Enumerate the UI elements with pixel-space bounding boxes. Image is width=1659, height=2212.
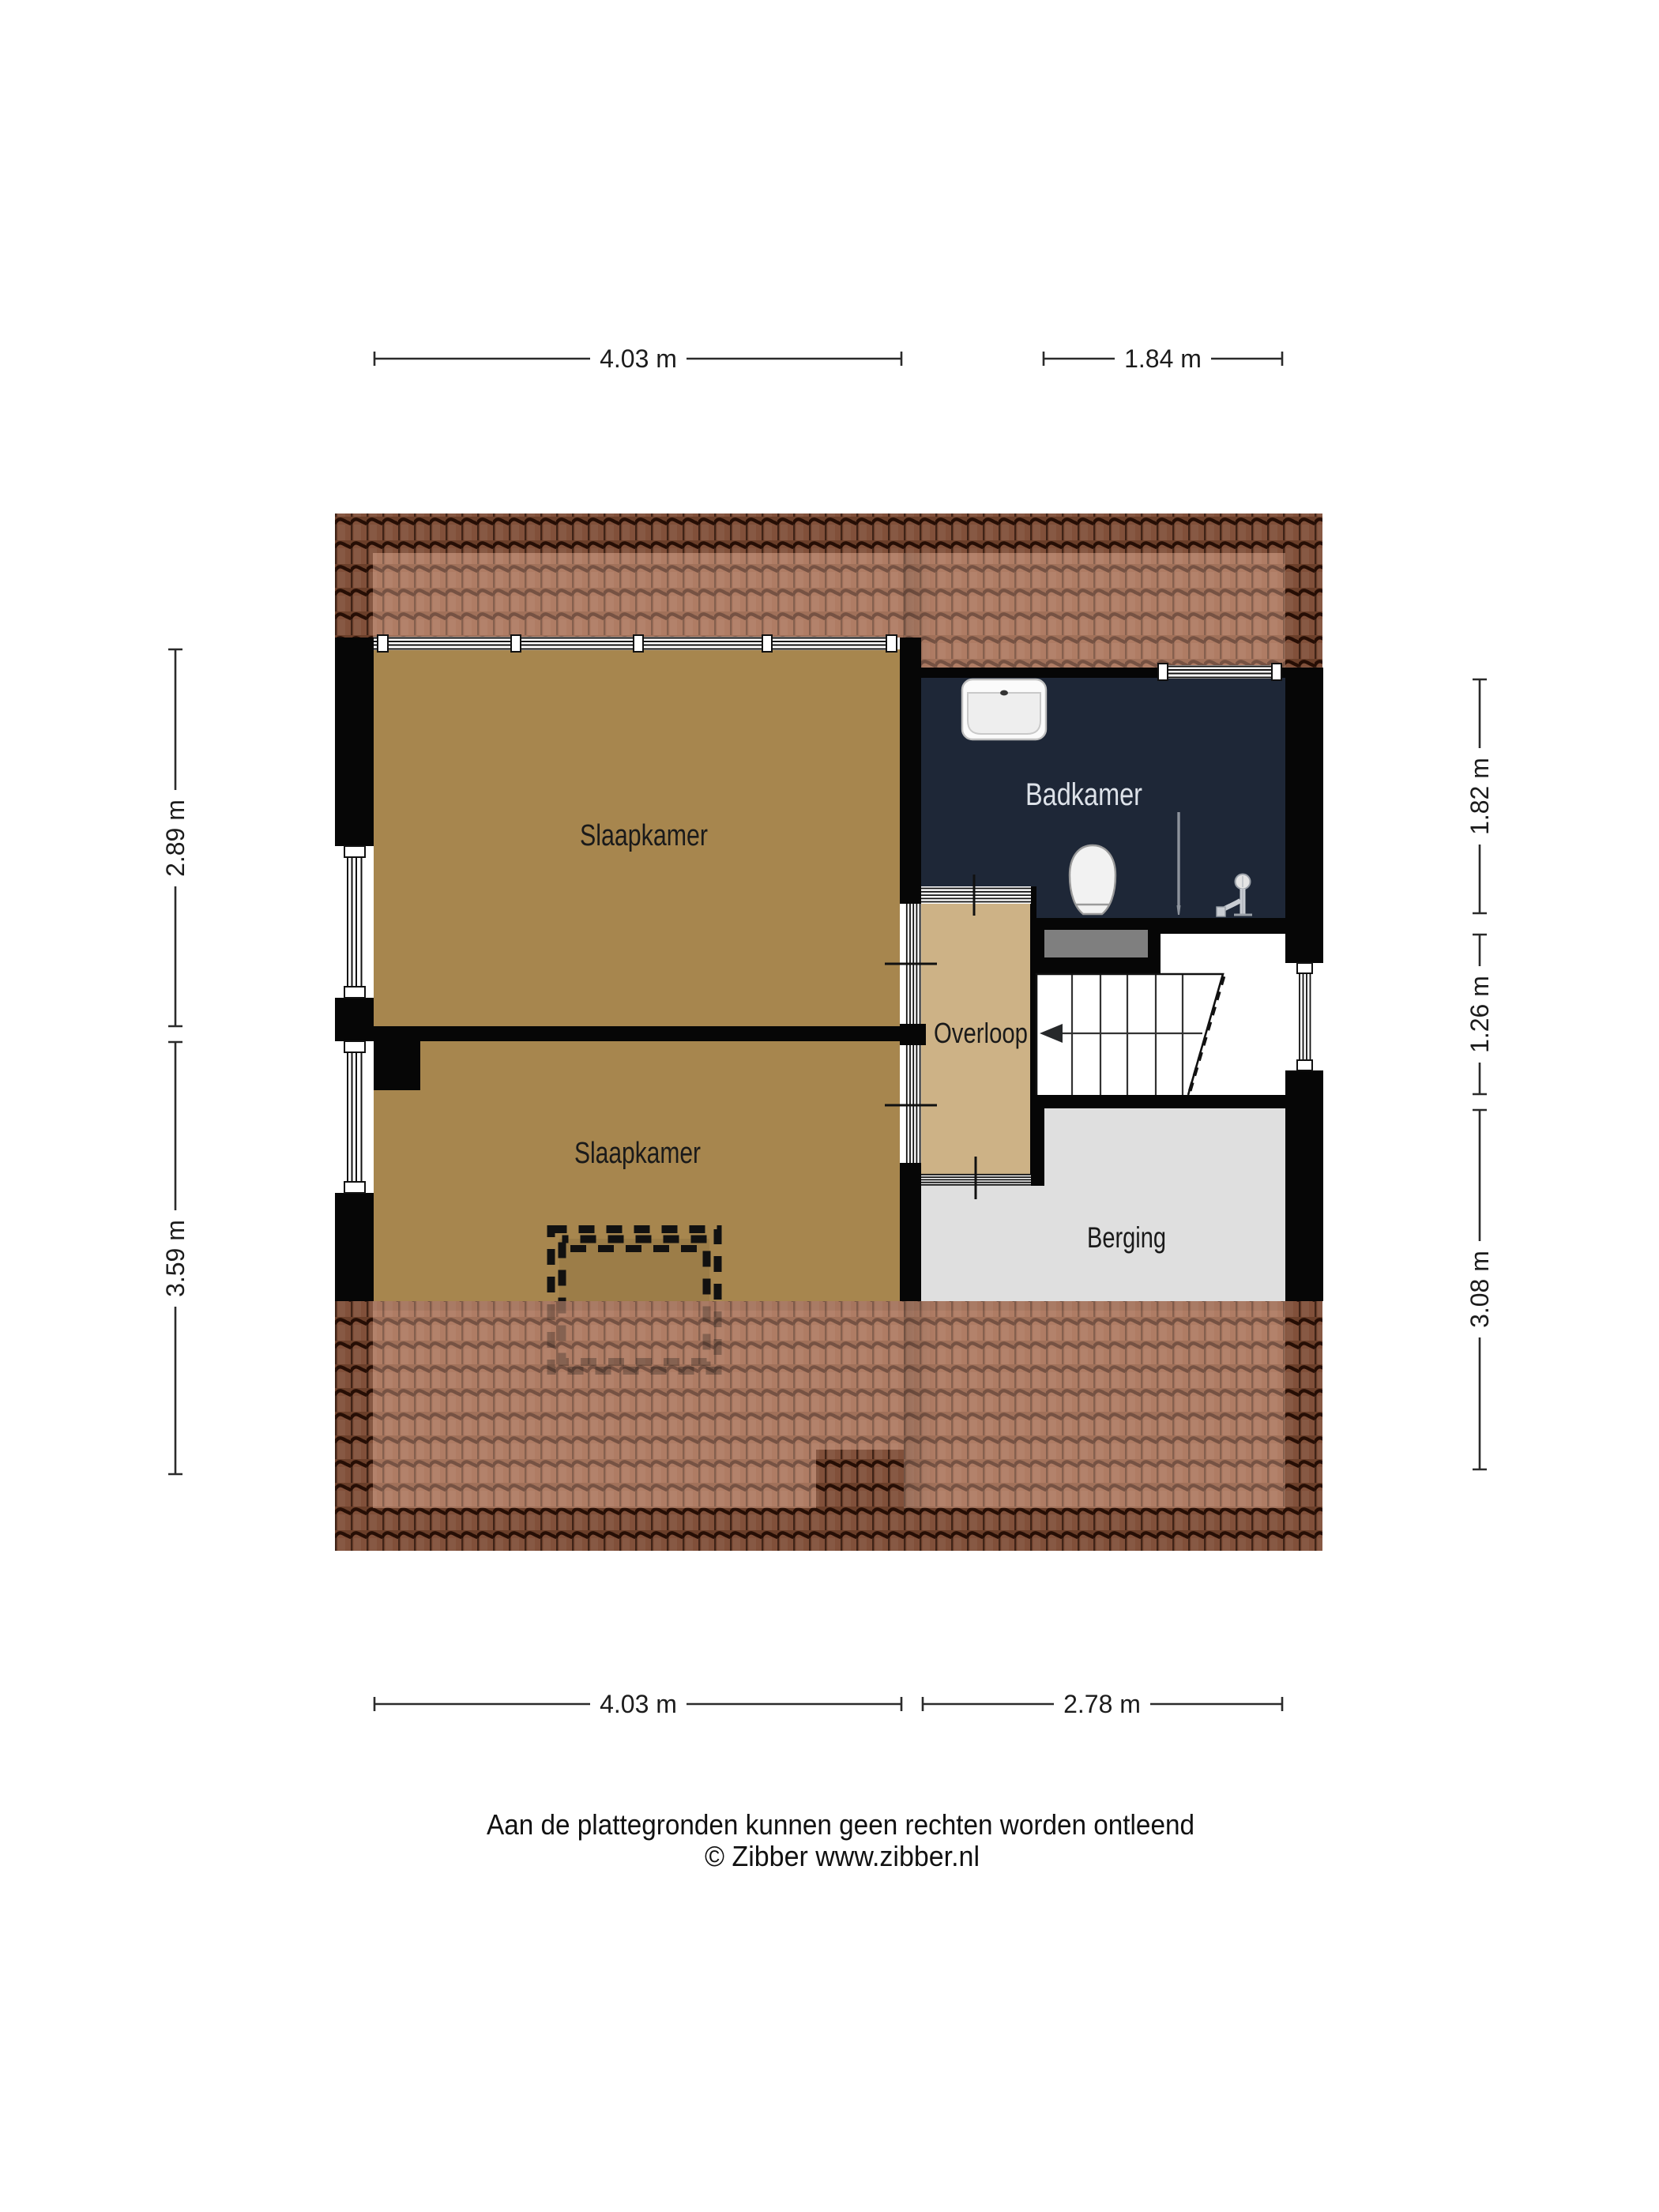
svg-text:Slaapkamer: Slaapkamer <box>580 819 708 852</box>
svg-text:Berging: Berging <box>1087 1221 1166 1254</box>
svg-text:3.08 m: 3.08 m <box>1465 1251 1494 1328</box>
svg-text:3.59 m: 3.59 m <box>161 1220 190 1297</box>
svg-text:4.03 m: 4.03 m <box>600 1690 677 1718</box>
svg-text:Aan de plattegronden kunnen ge: Aan de plattegronden kunnen geen rechten… <box>487 1808 1194 1841</box>
svg-text:1.84 m: 1.84 m <box>1124 344 1202 373</box>
svg-text:1.26 m: 1.26 m <box>1465 976 1494 1053</box>
svg-text:Slaapkamer: Slaapkamer <box>574 1137 701 1170</box>
svg-text:2.89 m: 2.89 m <box>161 799 190 877</box>
svg-text:© Zibber www.zibber.nl: © Zibber www.zibber.nl <box>705 1840 980 1872</box>
svg-text:2.78 m: 2.78 m <box>1063 1690 1141 1718</box>
svg-text:Overloop: Overloop <box>934 1017 1028 1049</box>
svg-text:Badkamer: Badkamer <box>1025 777 1142 812</box>
svg-text:4.03 m: 4.03 m <box>600 344 677 373</box>
svg-text:1.82 m: 1.82 m <box>1465 758 1494 835</box>
